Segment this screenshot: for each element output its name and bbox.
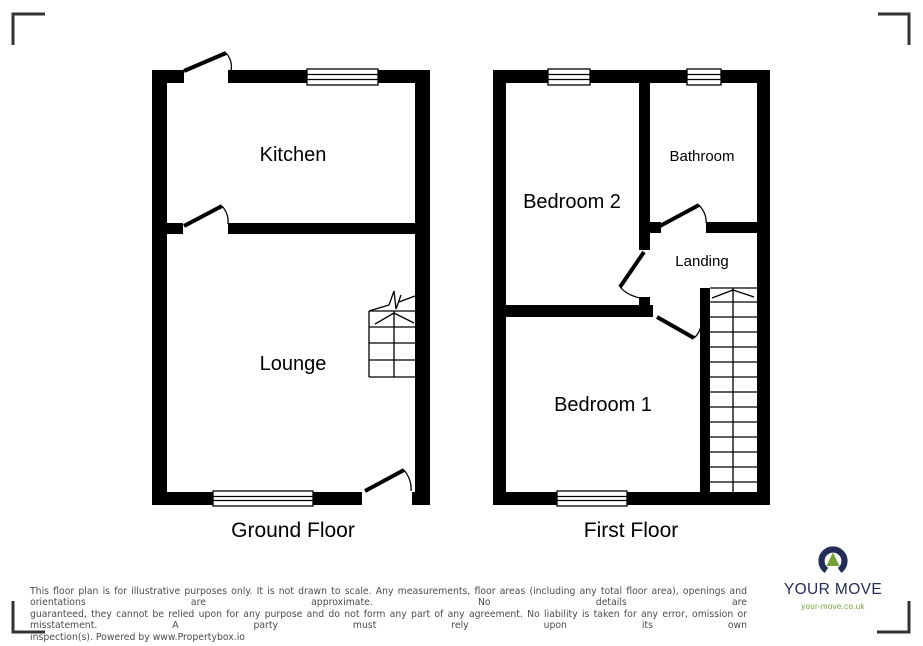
door-bedroom1: [657, 317, 702, 338]
room-label-bedroom2: Bedroom 2: [523, 191, 621, 213]
door-lounge-bottom: [365, 470, 411, 491]
disclaimer-line-1: This floor plan is for illustrative purp…: [30, 586, 747, 609]
ground-floor-plan: Kitchen Lounge Ground Floor: [152, 53, 430, 542]
window-kitchen-top: [307, 69, 378, 85]
disclaimer-line-2: guaranteed, they cannot be relied upon f…: [30, 609, 747, 632]
disclaimer-line-3: inspection(s). Powered by www.Propertybo…: [30, 632, 747, 643]
your-move-logo: YOUR MOVE your-move.co.uk: [773, 544, 893, 611]
window-bathroom-top: [687, 69, 721, 85]
frame-corner-top-right-icon: [878, 14, 909, 45]
ground-floor-title: Ground Floor: [231, 519, 355, 542]
ground-floor-walls: [152, 70, 430, 505]
stairs-ground-floor: [369, 291, 415, 377]
window-lounge-bottom: [213, 491, 313, 506]
window-bedroom2-top: [548, 69, 590, 85]
first-floor-plan: Bedroom 2 Bathroom Landing Bedroom 1 Fir…: [493, 69, 770, 542]
room-label-landing: Landing: [675, 253, 728, 270]
room-label-kitchen: Kitchen: [260, 144, 327, 166]
your-move-url-text: your-move.co.uk: [773, 602, 893, 611]
door-bathroom: [660, 205, 706, 226]
disclaimer-text: This floor plan is for illustrative purp…: [30, 586, 747, 643]
your-move-horseshoe-icon: [815, 544, 851, 575]
stairs-first-floor: [710, 288, 757, 492]
room-label-bedroom1: Bedroom 1: [554, 394, 652, 416]
frame-corner-top-left-icon: [13, 14, 45, 45]
window-bedroom1-bottom: [557, 491, 627, 506]
door-kitchen-lounge: [184, 206, 228, 226]
door-bedroom2: [620, 252, 644, 298]
room-label-bathroom: Bathroom: [669, 148, 734, 165]
door-kitchen-entry: [184, 53, 231, 71]
first-floor-title: First Floor: [584, 519, 679, 542]
room-label-lounge: Lounge: [260, 353, 327, 375]
floor-plan-page: Kitchen Lounge Ground Floor: [0, 0, 923, 646]
your-move-brand-text: YOUR MOVE: [773, 581, 893, 599]
